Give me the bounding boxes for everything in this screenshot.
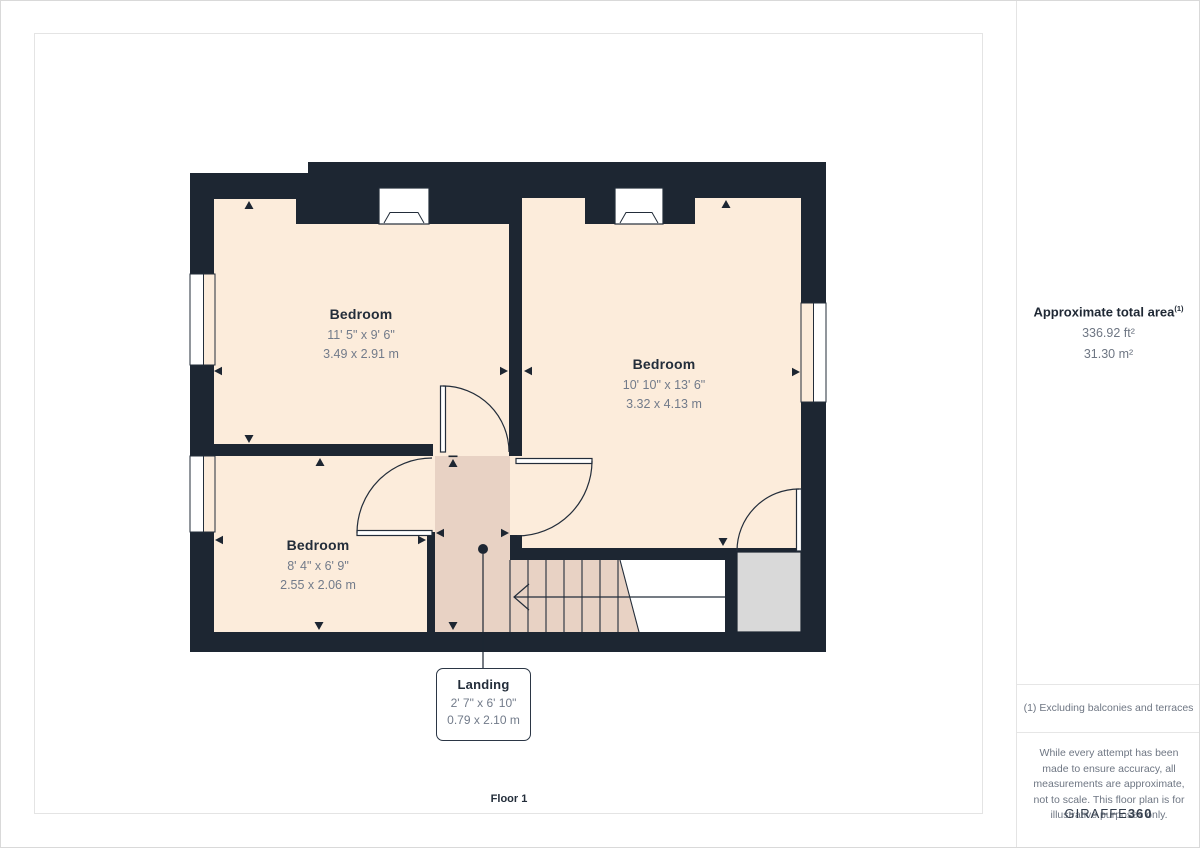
total-area-m: 31.30 m² xyxy=(1017,347,1200,361)
total-area-ft: 336.92 ft² xyxy=(1017,326,1200,340)
room-name: Bedroom xyxy=(623,356,705,372)
room-imperial-dims: 11' 5" x 9' 6" xyxy=(323,328,399,342)
area-footnote: (1) Excluding balconies and terraces xyxy=(1017,702,1200,714)
giraffe360-logo: GIRAFFE360 xyxy=(1017,806,1200,821)
room-imperial-dims: 8' 4" x 6' 9" xyxy=(280,559,356,573)
room-metric-dims: 3.49 x 2.91 m xyxy=(323,347,399,361)
room-imperial-dims: 10' 10" x 13' 6" xyxy=(623,378,705,392)
room-name: Bedroom xyxy=(280,537,356,553)
total-area-title: Approximate total area(1) xyxy=(1017,304,1200,319)
room-metric-dims: 2.55 x 2.06 m xyxy=(280,578,356,592)
floorplan-page: { "plan": { "floor_label": "Floor 1", "r… xyxy=(0,0,1200,848)
landing-callout: Landing 2' 7" x 6' 10" 0.79 x 2.10 m xyxy=(436,668,531,741)
bedroom2-label: Bedroom 10' 10" x 13' 6" 3.32 x 4.13 m xyxy=(623,356,705,411)
total-area-title-text: Approximate total area xyxy=(1033,304,1174,319)
sidebar-divider-bottom xyxy=(1017,732,1200,733)
info-sidebar: Approximate total area(1) 336.92 ft² 31.… xyxy=(1016,0,1200,848)
total-area-superscript: (1) xyxy=(1174,304,1183,313)
sidebar-divider-top xyxy=(1017,684,1200,685)
room-imperial-dims: 2' 7" x 6' 10" xyxy=(437,696,530,710)
room-name: Bedroom xyxy=(323,306,399,322)
bedroom1-label: Bedroom 11' 5" x 9' 6" 3.49 x 2.91 m xyxy=(323,306,399,361)
bedroom3-label: Bedroom 8' 4" x 6' 9" 2.55 x 2.06 m xyxy=(280,537,356,592)
room-metric-dims: 0.79 x 2.10 m xyxy=(437,713,530,727)
room-metric-dims: 3.32 x 4.13 m xyxy=(623,397,705,411)
room-name: Landing xyxy=(437,677,530,692)
brand-suffix: 360 xyxy=(1128,806,1153,821)
total-area-block: Approximate total area(1) 336.92 ft² 31.… xyxy=(1017,304,1200,361)
brand-name: GIRAFFE xyxy=(1064,806,1127,821)
floor-label: Floor 1 xyxy=(491,793,528,805)
